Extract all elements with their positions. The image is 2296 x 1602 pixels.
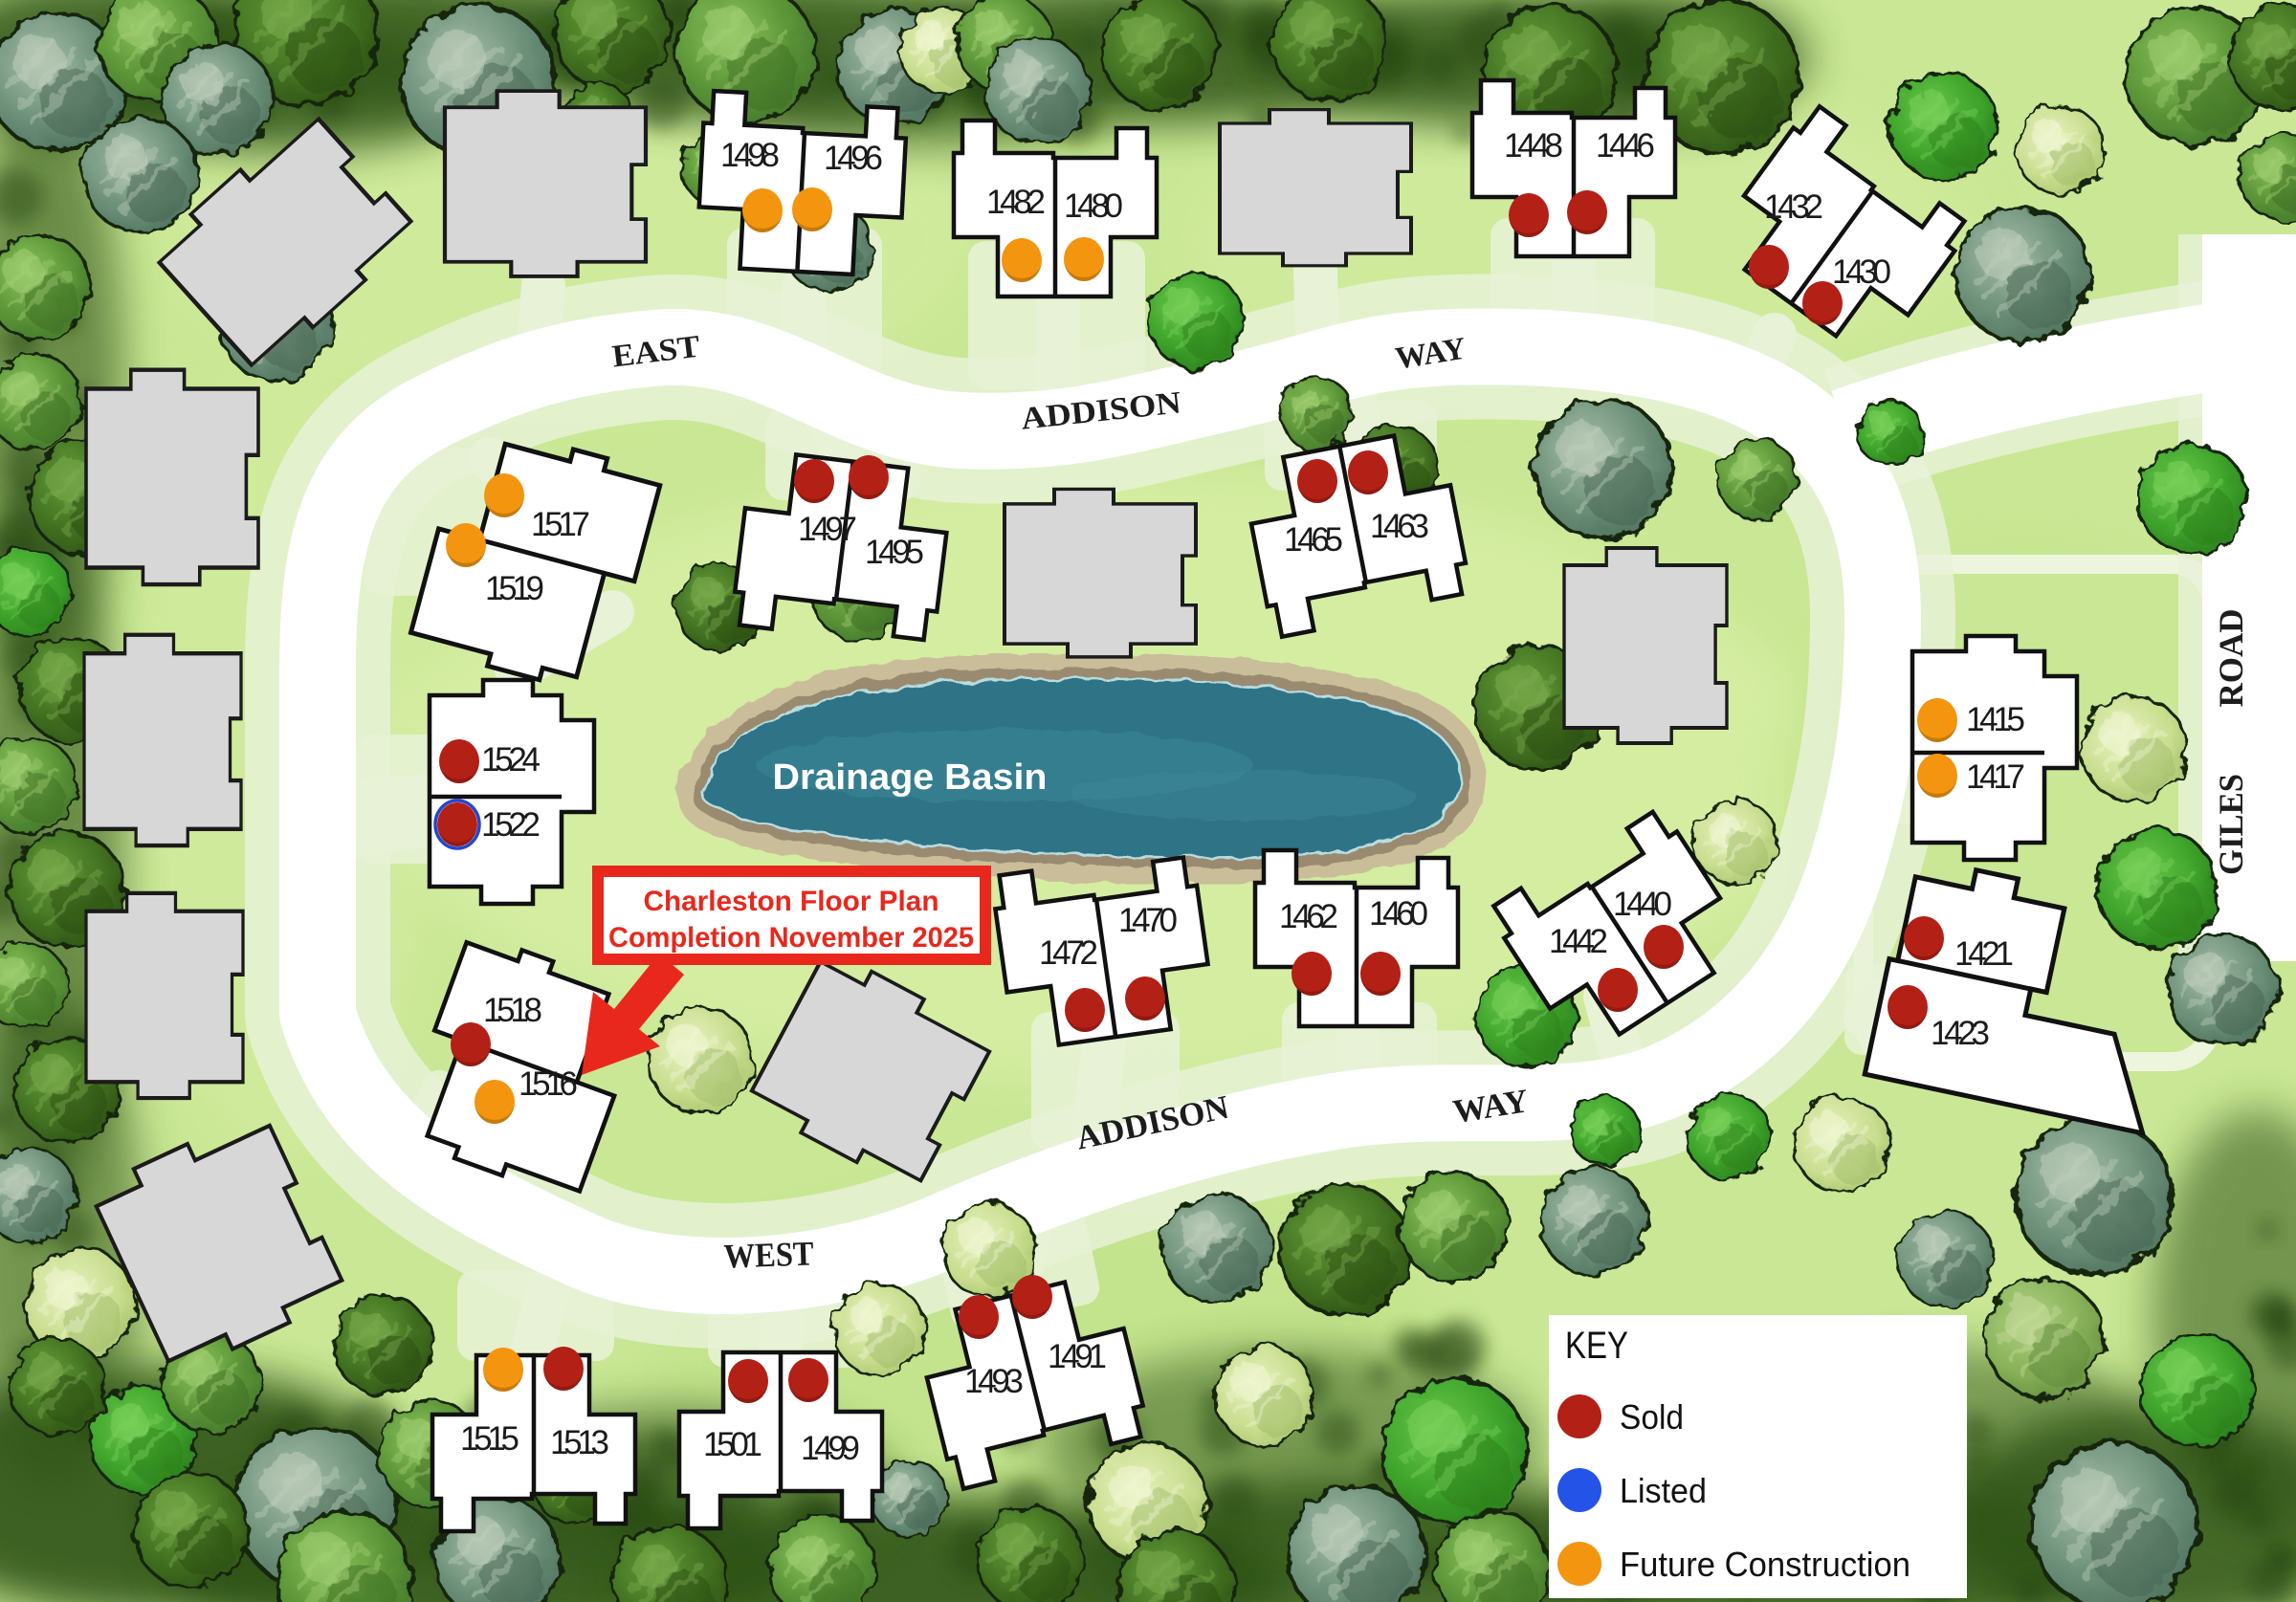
svg-text:Sold: Sold <box>1620 1397 1684 1437</box>
svg-text:1432: 1432 <box>1764 188 1823 226</box>
svg-text:1440: 1440 <box>1613 886 1672 923</box>
svg-text:1493: 1493 <box>964 1363 1024 1400</box>
svg-text:1519: 1519 <box>485 570 544 607</box>
svg-text:1417: 1417 <box>1966 758 2025 796</box>
svg-text:1491: 1491 <box>1048 1338 1107 1375</box>
svg-text:1421: 1421 <box>1954 935 2014 973</box>
svg-text:1497: 1497 <box>798 511 857 548</box>
svg-text:1480: 1480 <box>1064 187 1123 225</box>
svg-text:1430: 1430 <box>1832 253 1891 291</box>
svg-text:1446: 1446 <box>1596 127 1655 165</box>
svg-text:1462: 1462 <box>1279 898 1338 935</box>
svg-text:1516: 1516 <box>519 1065 578 1103</box>
svg-text:1517: 1517 <box>531 506 590 543</box>
svg-text:1482: 1482 <box>986 184 1046 221</box>
svg-text:1501: 1501 <box>703 1426 762 1463</box>
svg-text:1522: 1522 <box>481 806 541 844</box>
svg-text:1460: 1460 <box>1369 895 1428 933</box>
svg-text:Listed: Listed <box>1620 1471 1707 1510</box>
svg-text:1513: 1513 <box>550 1424 609 1461</box>
svg-text:1515: 1515 <box>460 1420 519 1458</box>
svg-text:1470: 1470 <box>1118 902 1178 939</box>
svg-text:Future Construction: Future Construction <box>1620 1545 1910 1584</box>
svg-text:1499: 1499 <box>801 1430 860 1467</box>
svg-text:Drainage Basin: Drainage Basin <box>773 757 1048 798</box>
svg-text:Charleston Floor Plan: Charleston Floor Plan <box>644 886 939 917</box>
svg-text:1448: 1448 <box>1504 127 1563 165</box>
svg-text:1498: 1498 <box>720 137 780 174</box>
svg-text:Completion November 2025: Completion November 2025 <box>608 922 974 954</box>
svg-text:1518: 1518 <box>483 992 542 1029</box>
svg-text:KEY: KEY <box>1565 1325 1628 1367</box>
svg-text:1423: 1423 <box>1931 1015 1990 1052</box>
svg-text:1495: 1495 <box>865 534 924 571</box>
svg-text:1524: 1524 <box>481 741 541 779</box>
svg-text:1415: 1415 <box>1966 701 2025 738</box>
svg-text:1465: 1465 <box>1284 521 1343 559</box>
svg-text:WEST: WEST <box>723 1234 814 1275</box>
svg-text:ROAD: ROAD <box>2212 609 2250 708</box>
svg-text:1472: 1472 <box>1039 934 1098 972</box>
svg-text:1442: 1442 <box>1549 923 1608 960</box>
svg-text:1463: 1463 <box>1370 508 1429 545</box>
svg-text:GILES: GILES <box>2212 774 2250 875</box>
svg-text:1496: 1496 <box>824 140 883 177</box>
